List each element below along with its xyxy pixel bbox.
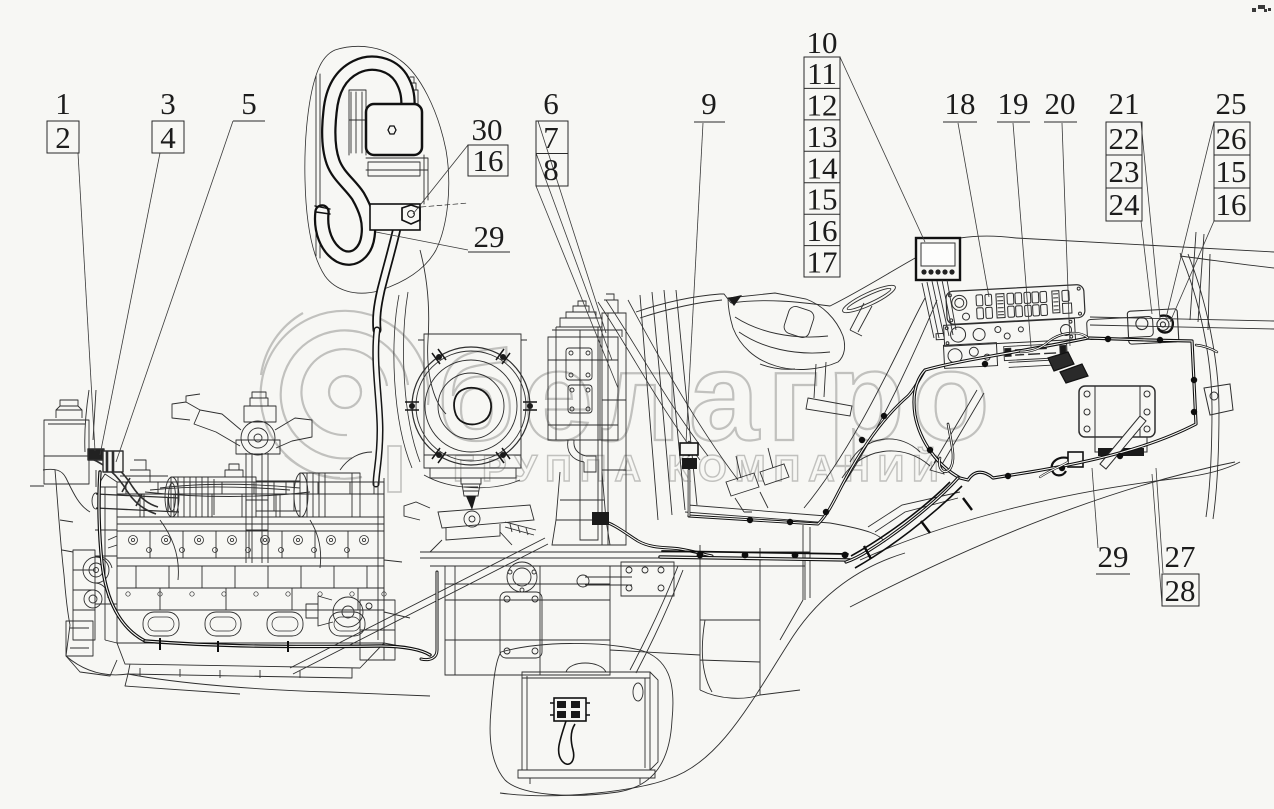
svg-text:12: 12 [807, 87, 838, 122]
svg-text:14: 14 [807, 150, 839, 185]
svg-text:29: 29 [474, 219, 505, 254]
svg-text:3: 3 [160, 86, 176, 121]
svg-text:24: 24 [1109, 187, 1141, 222]
svg-text:15: 15 [1216, 154, 1247, 189]
svg-text:23: 23 [1109, 154, 1140, 189]
svg-text:6: 6 [543, 86, 559, 121]
svg-text:28: 28 [1165, 573, 1196, 608]
svg-text:8: 8 [543, 152, 559, 187]
svg-text:16: 16 [1216, 187, 1247, 222]
svg-text:ГРУППА КОМПАНИЙ: ГРУППА КОМПАНИЙ [453, 447, 947, 489]
svg-text:16: 16 [473, 143, 504, 178]
svg-text:16: 16 [807, 213, 838, 248]
svg-text:4: 4 [160, 120, 176, 155]
svg-text:11: 11 [807, 56, 837, 91]
svg-text:19: 19 [998, 86, 1029, 121]
svg-text:9: 9 [701, 86, 717, 121]
svg-text:27: 27 [1165, 539, 1196, 574]
svg-text:25: 25 [1216, 86, 1247, 121]
svg-text:20: 20 [1045, 86, 1076, 121]
svg-text:29: 29 [1098, 539, 1129, 574]
svg-text:5: 5 [241, 86, 257, 121]
svg-text:13: 13 [807, 119, 838, 154]
svg-text:22: 22 [1109, 121, 1140, 156]
svg-text:26: 26 [1216, 121, 1247, 156]
svg-text:21: 21 [1109, 86, 1140, 121]
svg-text:1: 1 [55, 86, 71, 121]
svg-text:2: 2 [55, 120, 71, 155]
svg-text:7: 7 [543, 120, 559, 155]
svg-text:10: 10 [807, 25, 838, 60]
svg-text:17: 17 [807, 245, 838, 280]
svg-text:18: 18 [945, 86, 976, 121]
svg-text:15: 15 [807, 182, 838, 217]
svg-text:30: 30 [472, 112, 503, 147]
